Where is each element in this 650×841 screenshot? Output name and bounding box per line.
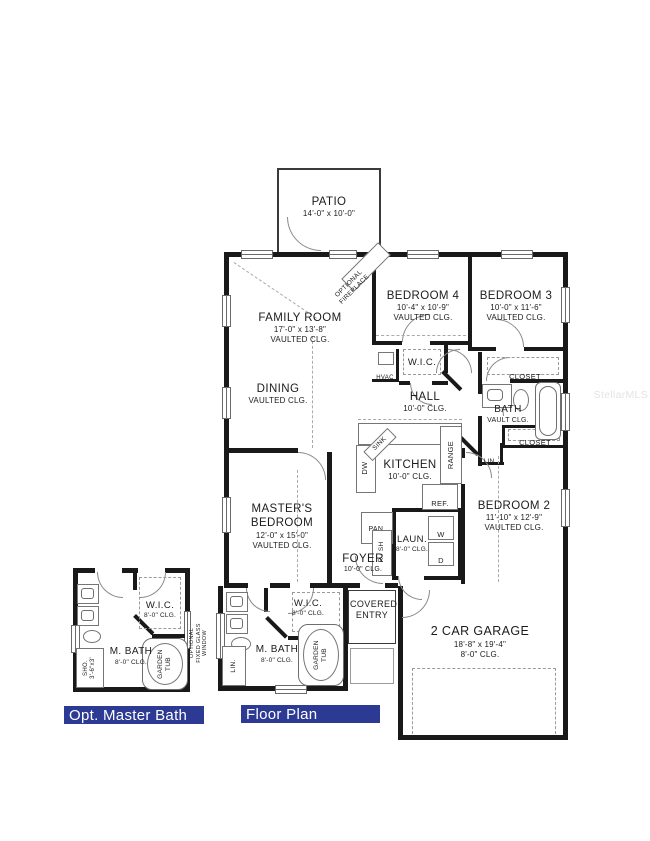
window-bath-right xyxy=(562,394,569,430)
room-label-bed2: BEDROOM 2 11'-10" x 12'-9" VAULTED CLG. xyxy=(468,499,560,533)
wall-wic-bottom-a xyxy=(399,381,410,385)
window-bed4-top xyxy=(408,251,438,258)
master-bath-name: M. BATH xyxy=(246,644,308,657)
hvac-unit xyxy=(378,352,394,365)
watermark: StellarMLS xyxy=(584,389,648,401)
bed2-dims: 11'-10" x 12'-9" xyxy=(468,513,560,523)
optional-window-note-text: OPTIONAL FIXED GLASS WINDOW xyxy=(189,621,209,665)
closet-bottom-label: CLOSET xyxy=(506,431,564,451)
bath-sink-basin xyxy=(487,389,503,401)
room-label-hall: HALL 10'-0" CLG. xyxy=(398,390,452,414)
foyer-name: FOYER xyxy=(334,552,392,566)
bed2-name: BEDROOM 2 xyxy=(468,499,560,513)
family-clg: VAULTED CLG. xyxy=(240,335,360,345)
master-door-arc xyxy=(298,452,326,480)
window-bed3-right xyxy=(562,288,569,322)
hall-clg: 10'-0" CLG. xyxy=(398,404,452,414)
room-label-hall-wic: W.I.C. xyxy=(400,357,444,369)
entry-stoop xyxy=(350,648,394,684)
garage-clg: 8'-0" CLG. xyxy=(420,650,540,660)
opt-wic-clg: 8'-0" CLG. xyxy=(136,612,184,620)
dining-name: DINING xyxy=(238,382,318,396)
room-label-covered-entry: COVERED ENTRY xyxy=(350,599,394,622)
room-label-opt-wic: W.I.C. 8'-0" CLG. xyxy=(136,600,184,620)
bed4-name: BEDROOM 4 xyxy=(378,289,468,303)
wall-bed3-bottom-a xyxy=(468,347,496,351)
wall-laundry-bottom-b xyxy=(424,576,462,580)
closet-bottom-text: CLOSET xyxy=(519,438,551,447)
kitchen-name: KITCHEN xyxy=(378,458,442,472)
room-label-dining: DINING VAULTED CLG. xyxy=(238,382,318,406)
window-bed3-top xyxy=(502,251,532,258)
shower-name: SHO. xyxy=(83,660,89,676)
washer-text: W xyxy=(437,530,444,539)
garage-name: 2 CAR GARAGE xyxy=(420,624,540,640)
master-dims: 12'-0" x 15'-0" xyxy=(234,531,330,541)
bed3-name: BEDROOM 3 xyxy=(472,289,560,303)
range-text: RANGE xyxy=(446,441,455,469)
mbath-sink-1-basin xyxy=(230,596,243,607)
window-patio-top xyxy=(330,251,356,258)
wall-garage-bottom xyxy=(398,735,568,740)
wall-bed4-bottom-b xyxy=(430,341,472,345)
wall-master-bottom-2 xyxy=(270,583,290,588)
wall-laundry-right xyxy=(458,508,462,580)
room-label-bed3: BEDROOM 3 10'-0" x 11'-6" VAULTED CLG. xyxy=(472,289,560,323)
foyer-clg: 10'-0" CLG. xyxy=(334,566,392,575)
wall-master-dining xyxy=(224,448,298,453)
dryer-label: D xyxy=(428,549,454,569)
hall-door-arc-2 xyxy=(448,349,472,373)
room-label-opt-mbath: M. BATH 8'-0" CLG. xyxy=(100,646,162,667)
window-mbath-bottom xyxy=(276,686,306,693)
optional-window-note-label: OPTIONAL FIXED GLASS WINDOW xyxy=(191,613,207,673)
range-label: RANGE xyxy=(445,435,457,475)
floor-plan-banner: Floor Plan xyxy=(241,705,380,723)
closet-top-label: CLOSET xyxy=(494,365,556,385)
dishwasher-label: DW xyxy=(359,453,371,483)
closet-top-text: CLOSET xyxy=(509,372,541,381)
wall-bed4-bottom-a xyxy=(372,341,402,345)
opt-master-bath-banner: Opt. Master Bath xyxy=(64,706,204,724)
kitchen-clg: 10'-0" CLG. xyxy=(378,472,442,482)
master-bath-clg: 8'-0" CLG. xyxy=(246,657,308,665)
laundry-name: LAUN. xyxy=(394,534,430,546)
laundry-clg: 8'-0" CLG. xyxy=(394,546,430,554)
bath-clg: VAULT CLG. xyxy=(482,417,534,426)
bed4-dash xyxy=(376,335,466,336)
opt-mbath-clg: 8'-0" CLG. xyxy=(100,659,162,667)
window-dining-left xyxy=(223,388,230,418)
mbath-door-arc xyxy=(246,588,270,612)
window-family-top xyxy=(242,251,272,258)
room-label-family: FAMILY ROOM 17'-0" x 13'-8" VAULTED CLG. xyxy=(240,311,360,345)
room-label-laundry: LAUN. 8'-0" CLG. xyxy=(394,534,430,554)
wall-master-bottom-1 xyxy=(224,583,248,588)
hall-name: HALL xyxy=(398,390,452,404)
room-label-master-bath: M. BATH 8'-0" CLG. xyxy=(246,644,308,665)
family-dims: 17'-0" x 13'-8" xyxy=(240,325,360,335)
hvac-label: HVAC xyxy=(372,365,398,385)
master-name: MASTER'S BEDROOM xyxy=(234,502,330,531)
room-label-garage: 2 CAR GARAGE 18'-8" x 19'-4" 8'-0" CLG. xyxy=(420,624,540,660)
room-label-bath: BATH VAULT CLG. xyxy=(482,404,534,425)
wall-foyer-front-1 xyxy=(348,583,360,588)
wall-bed3-bottom-b xyxy=(524,347,568,351)
room-label-foyer: FOYER 10'-0" CLG. xyxy=(334,552,392,575)
refrigerator-label: REF. xyxy=(422,492,458,512)
patio-dims: 14'-0" x 10'-0" xyxy=(279,209,379,219)
opt-toilet xyxy=(83,630,101,643)
window-bed2-right xyxy=(562,490,569,526)
opt-sink-2-basin xyxy=(81,610,94,621)
opt-shower-label: SHO. 3'-6"x3' xyxy=(81,650,99,686)
dw-text: DW xyxy=(360,461,369,474)
bath-name: BATH xyxy=(482,404,534,417)
dining-clg: VAULTED CLG. xyxy=(238,396,318,406)
bed2-clg: VAULTED CLG. xyxy=(468,523,560,533)
garage-door-dash xyxy=(412,668,556,734)
garden-tub-text-main: GARDEN TUB xyxy=(313,633,329,677)
ref-text: REF. xyxy=(431,499,448,508)
master-clg: VAULTED CLG. xyxy=(234,541,330,551)
master-wic-clg: 8'-0" CLG. xyxy=(282,610,334,618)
opt-wic-name: W.I.C. xyxy=(136,600,184,612)
linen-hall-label: LIN. xyxy=(479,449,501,469)
bed3-dims: 10'-0" x 11'-6" xyxy=(472,303,560,313)
linen-master-label: LIN. xyxy=(228,651,240,681)
family-name: FAMILY ROOM xyxy=(240,311,360,325)
wall-foyer-front-2 xyxy=(385,583,398,588)
washer-label: W xyxy=(428,523,454,543)
wall-wic-bottom-b xyxy=(432,381,448,385)
covered-entry-name: COVERED ENTRY xyxy=(350,599,394,622)
window-family-left xyxy=(223,296,230,326)
window-master-left xyxy=(223,498,230,532)
mbath-sink-2-basin xyxy=(230,618,243,629)
hvac-text: HVAC xyxy=(376,375,393,381)
opt-door-arc xyxy=(97,572,123,598)
patio-name: PATIO xyxy=(279,195,379,209)
shower-dims: 3'-6"x3' xyxy=(90,657,96,679)
floor-plan-canvas: PATIO 14'-0" x 10'-0" xyxy=(0,0,650,841)
room-label-patio: PATIO 14'-0" x 10'-0" xyxy=(279,195,379,219)
bed3-clg: VAULTED CLG. xyxy=(472,313,560,323)
opt-sink-1-basin xyxy=(81,588,94,599)
opt-mbath-name: M. BATH xyxy=(100,646,162,659)
room-label-kitchen: KITCHEN 10'-0" CLG. xyxy=(378,458,442,482)
room-label-master: MASTER'S BEDROOM 12'-0" x 15'-0" VAULTED… xyxy=(234,502,330,551)
garden-tub-label-main: GARDEN TUB xyxy=(310,633,332,677)
room-label-master-wic: W.I.C. 8'-0" CLG. xyxy=(282,598,334,618)
bed4-clg: VAULTED CLG. xyxy=(378,313,468,323)
garage-dims: 18'-8" x 19'-4" xyxy=(420,640,540,650)
dryer-text: D xyxy=(438,556,444,565)
room-label-bed4: BEDROOM 4 10'-4" x 10'-9" VAULTED CLG. xyxy=(378,289,468,323)
hall-wic-name: W.I.C. xyxy=(400,357,444,369)
opt-wall-right-1 xyxy=(185,568,190,612)
bed4-dims: 10'-4" x 10'-9" xyxy=(378,303,468,313)
linen-master-text: LIN. xyxy=(230,659,238,672)
opt-wic-stub xyxy=(133,572,137,590)
shower-text: SHO. 3'-6"x3' xyxy=(83,657,98,679)
linen-hall-text: LIN. xyxy=(483,458,496,465)
master-wic-name: W.I.C. xyxy=(282,598,334,610)
wall-suite-wic-chamfer xyxy=(265,616,288,639)
kitchen-dash xyxy=(358,419,462,420)
bath-tub-inner xyxy=(539,386,557,436)
